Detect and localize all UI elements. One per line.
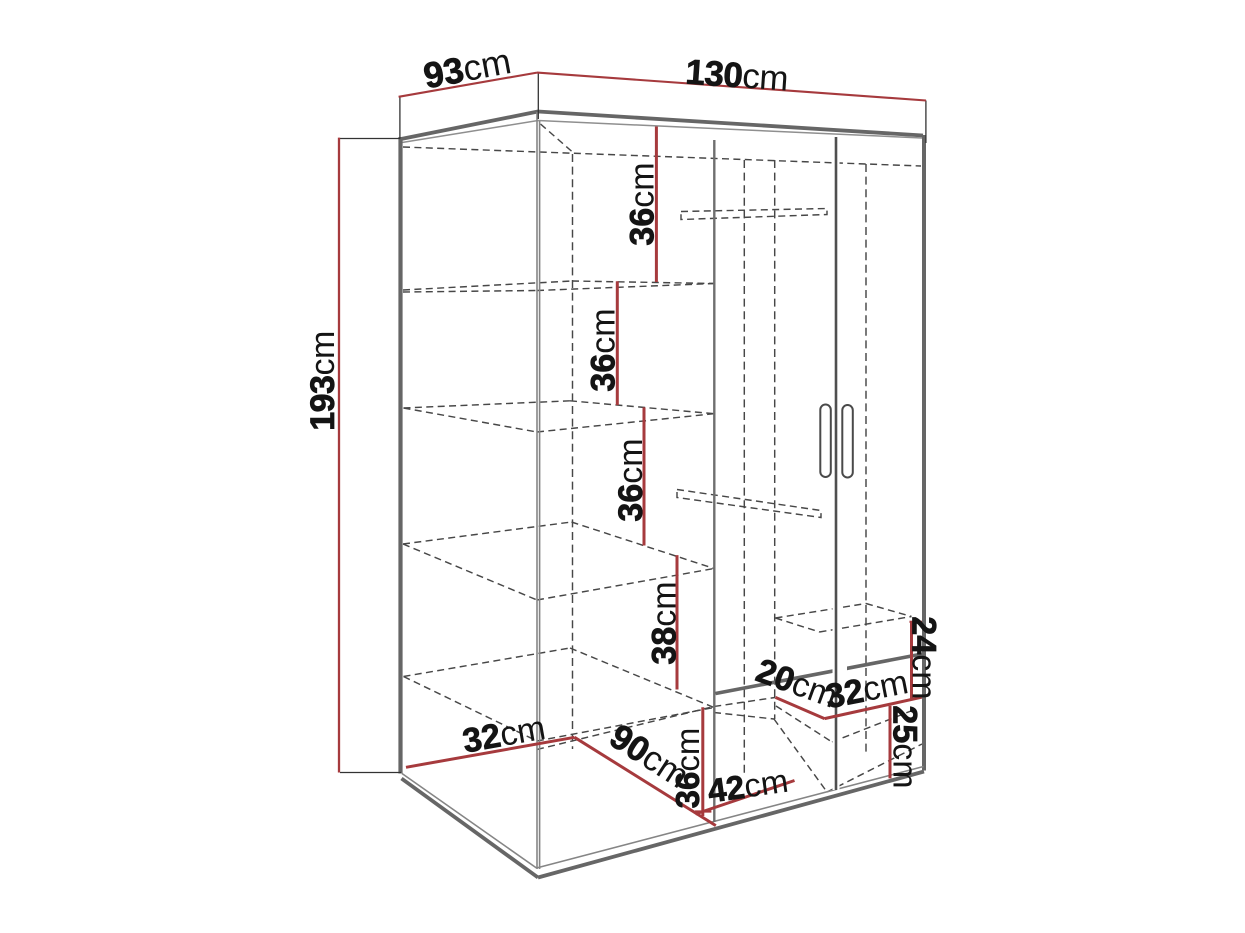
svg-text:130cm: 130cm (684, 52, 789, 98)
svg-text:36cm: 36cm (585, 308, 623, 391)
svg-text:25cm: 25cm (886, 705, 924, 788)
svg-text:36cm: 36cm (624, 162, 662, 245)
svg-text:193cm: 193cm (304, 331, 342, 431)
svg-text:36cm: 36cm (612, 438, 650, 521)
svg-text:38cm: 38cm (646, 581, 684, 664)
svg-text:24cm: 24cm (905, 616, 943, 699)
